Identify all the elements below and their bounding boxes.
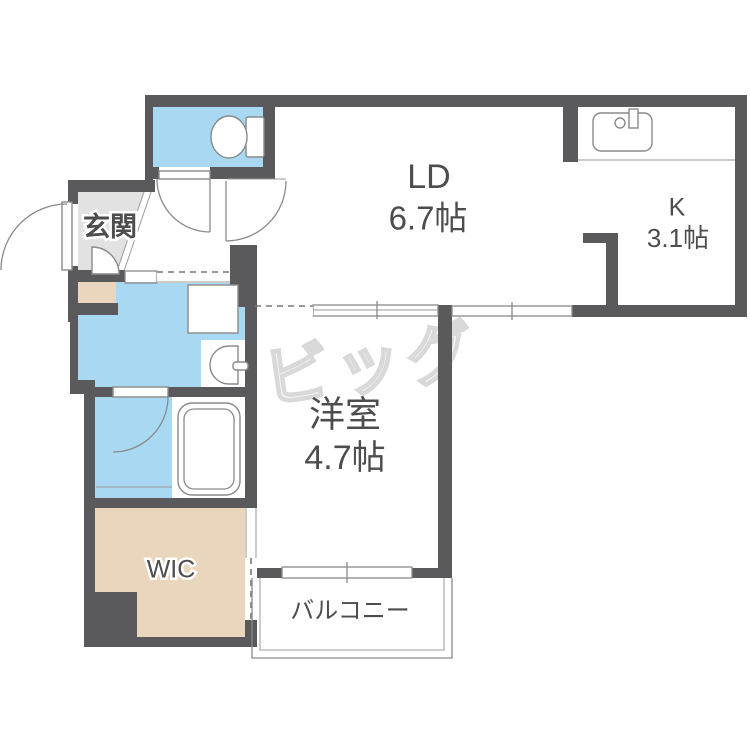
kitchen-faucet-icon (629, 109, 638, 128)
wall-bath-top-a (84, 387, 113, 397)
wall-step-block (84, 592, 137, 640)
wall-shoe-cabinet-bottom (75, 303, 118, 315)
wall-western-right (438, 305, 452, 578)
wall-entrance-top (68, 180, 155, 192)
label-western-room-area: 4.7帖 (304, 439, 385, 477)
wall-kitchen-L-vert (606, 233, 618, 307)
wall-kitchen-bottom (572, 305, 747, 317)
wall-western-bottom-left (255, 568, 282, 578)
washing-machine-pan-icon (188, 285, 238, 333)
wall-wic-right-corner (245, 620, 257, 647)
wall-bath-top-b (168, 387, 245, 397)
toilet-tank-icon (246, 117, 264, 157)
entrance-door-leaf (62, 202, 72, 270)
wall-western-left (245, 305, 257, 508)
toilet-door-frame (159, 171, 210, 179)
label-ld-area: 6.7帖 (389, 200, 468, 237)
shoe-cabinet-floor (78, 282, 116, 305)
toilet-bowl-icon (211, 116, 247, 158)
wall-toilet-bottom-a (145, 167, 159, 179)
floor-plan: ビッグ (0, 0, 750, 750)
wall-bottom (84, 637, 255, 647)
label-western-room: 洋室 (309, 394, 381, 435)
wash-basin-tap-icon (233, 362, 248, 370)
kitchen-sink-drain-icon (615, 118, 625, 128)
wall-kitchen-L-horiz (583, 233, 618, 243)
label-kitchen: K (669, 194, 686, 222)
label-balcony: バルコニー (290, 597, 410, 624)
wall-outer-left-wash (70, 318, 78, 384)
wall-toilet-bottom-b (210, 167, 263, 179)
bathtub-outer-icon (178, 403, 240, 495)
label-kitchen-area: 3.1帖 (647, 223, 709, 253)
wall-toilet-right (263, 107, 275, 179)
label-entrance: 玄関 (83, 211, 137, 242)
label-ld: LD (407, 158, 450, 196)
wall-kitchen-divider (563, 107, 578, 162)
bathroom-door-frame (113, 387, 168, 397)
wall-top (145, 95, 747, 107)
label-wic: WIC (147, 556, 196, 584)
bathroom-floor (95, 397, 172, 498)
wall-right (735, 107, 747, 317)
wall-bath-bottom (84, 498, 255, 508)
